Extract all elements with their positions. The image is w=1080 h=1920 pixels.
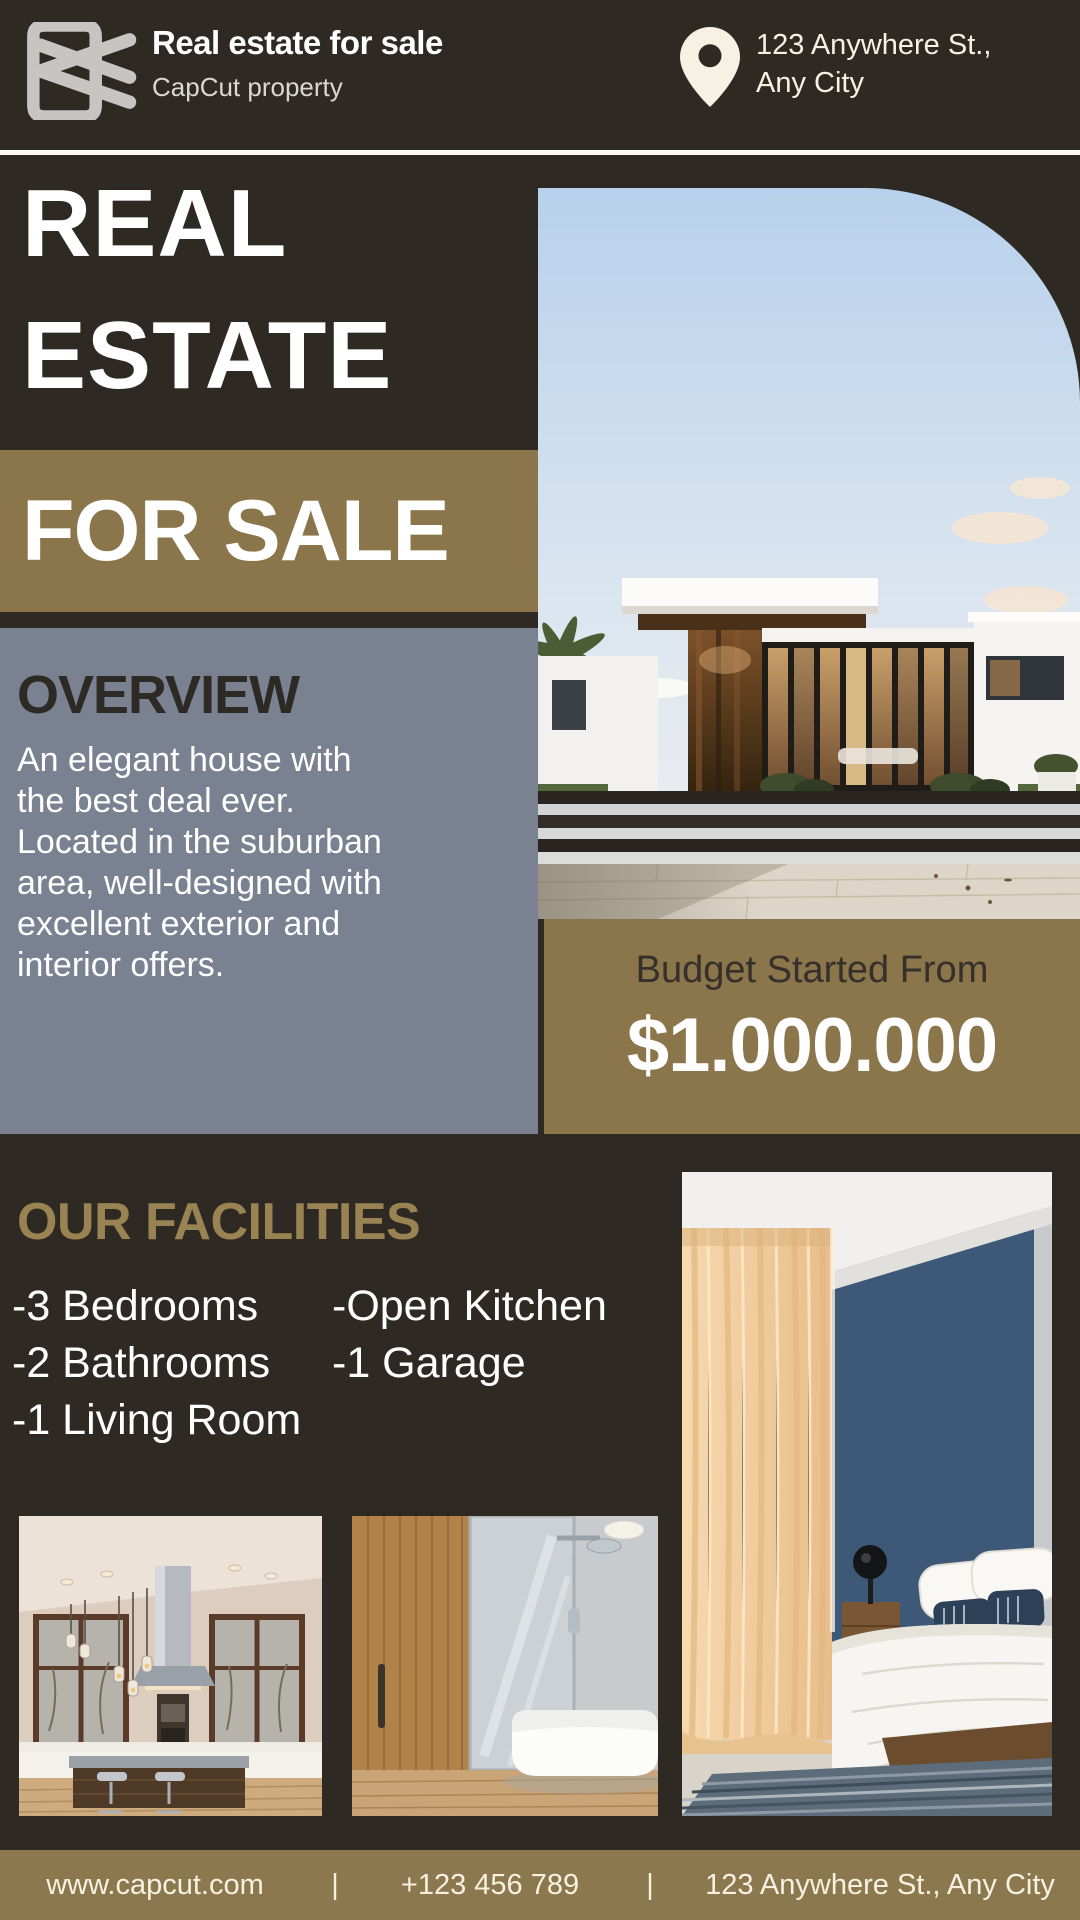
facility-item: -2 Bathrooms: [12, 1335, 301, 1392]
budget-label: Budget Started From: [544, 949, 1080, 992]
hero-title: REAL ESTATE: [22, 158, 392, 422]
facility-item: -Open Kitchen: [332, 1278, 607, 1335]
bedroom-photo: [682, 1172, 1052, 1816]
header-address: 123 Anywhere St., Any City: [756, 26, 991, 102]
facility-item: -3 Bedrooms: [12, 1278, 301, 1335]
capcut-logo-icon: [16, 22, 138, 120]
footer-separator: |: [635, 1850, 665, 1920]
budget-panel: Budget Started From $1.000.000: [544, 919, 1080, 1134]
hero-house-photo: [538, 188, 1080, 919]
facilities-column-2: -Open Kitchen -1 Garage: [332, 1278, 607, 1392]
overview-heading: OVERVIEW: [17, 664, 299, 726]
footer-phone: +123 456 789: [375, 1850, 605, 1920]
location-pin-icon: [680, 26, 740, 108]
bathroom-photo: [352, 1516, 658, 1816]
real-estate-flyer: Real estate for sale CapCut property 123…: [0, 0, 1080, 1920]
footer-separator: |: [320, 1850, 350, 1920]
facilities-heading: OUR FACILITIES: [17, 1192, 420, 1252]
for-sale-label: FOR SALE: [22, 450, 449, 612]
kitchen-photo: [19, 1516, 322, 1816]
overview-paragraph: An elegant house with the best deal ever…: [17, 740, 522, 986]
for-sale-banner: FOR SALE: [0, 450, 538, 612]
budget-price: $1.000.000: [544, 1002, 1080, 1089]
brand-subtitle: CapCut property: [152, 72, 343, 103]
facility-item: -1 Garage: [332, 1335, 607, 1392]
facility-item: -1 Living Room: [12, 1392, 301, 1449]
overview-panel: OVERVIEW An elegant house with the best …: [0, 628, 538, 1134]
brand-title: Real estate for sale: [152, 24, 443, 62]
footer-website: www.capcut.com: [30, 1850, 280, 1920]
facilities-column-1: -3 Bedrooms -2 Bathrooms -1 Living Room: [12, 1278, 301, 1449]
header-divider: [0, 150, 1080, 155]
footer-address: 123 Anywhere St., Any City: [695, 1850, 1065, 1920]
footer-bar: www.capcut.com | +123 456 789 | 123 Anyw…: [0, 1850, 1080, 1920]
